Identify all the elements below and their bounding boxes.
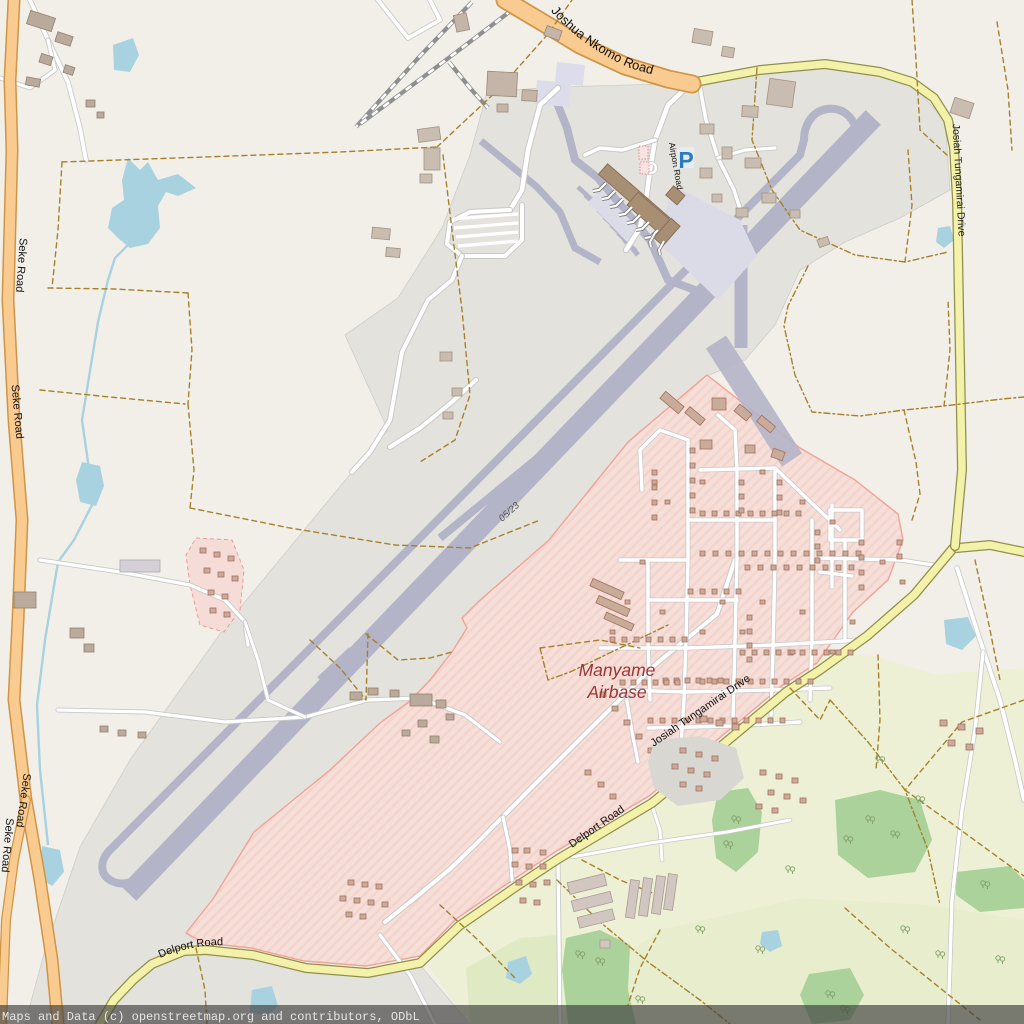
svg-text:Maps and Data (c) openstreetma: Maps and Data (c) openstreetmap.org and … <box>2 1010 420 1024</box>
svg-text:Manyame: Manyame <box>579 660 656 680</box>
svg-text:Airbase: Airbase <box>586 682 647 702</box>
svg-text:P: P <box>678 147 693 173</box>
